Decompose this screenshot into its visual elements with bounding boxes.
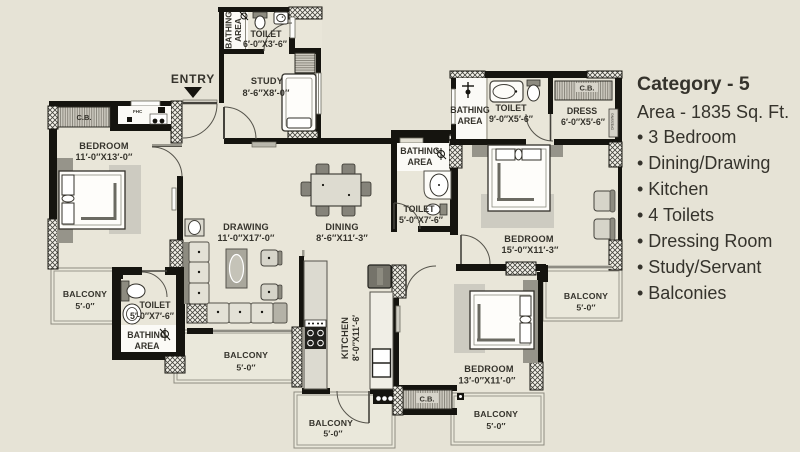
svg-text:AREA: AREA xyxy=(233,18,243,42)
svg-text:13′-0″X11′-0″: 13′-0″X11′-0″ xyxy=(459,376,516,386)
svg-text:C.B.: C.B. xyxy=(580,84,595,93)
svg-text:BATHING: BATHING xyxy=(400,146,440,156)
svg-text:BALCONY: BALCONY xyxy=(63,289,107,299)
svg-text:BALCONY: BALCONY xyxy=(309,418,353,428)
svg-text:8′-6″X11′-3″: 8′-6″X11′-3″ xyxy=(316,233,368,243)
svg-text:• Dining/Drawing: • Dining/Drawing xyxy=(637,153,770,173)
svg-text:5′-0″X7′-6″: 5′-0″X7′-6″ xyxy=(130,311,175,321)
svg-text:8′-6″X8′-0″: 8′-6″X8′-0″ xyxy=(243,88,290,98)
svg-text:C.B.: C.B. xyxy=(77,113,92,122)
svg-text:5′-0″: 5′-0″ xyxy=(323,429,342,439)
svg-text:BEDROOM: BEDROOM xyxy=(504,234,554,244)
svg-text:TOILET: TOILET xyxy=(250,29,282,39)
svg-text:BALCONY: BALCONY xyxy=(474,409,518,419)
svg-text:• Study/Servant: • Study/Servant xyxy=(637,257,761,277)
svg-text:BEDROOM: BEDROOM xyxy=(464,364,514,374)
svg-text:BALCONY: BALCONY xyxy=(564,291,608,301)
svg-text:DRESS: DRESS xyxy=(567,106,597,116)
svg-text:5′-0″: 5′-0″ xyxy=(236,363,255,373)
svg-text:STUDY: STUDY xyxy=(251,76,283,86)
svg-text:8′-0″X11′-6′: 8′-0″X11′-6′ xyxy=(351,315,361,361)
svg-text:• 3 Bedroom: • 3 Bedroom xyxy=(637,127,736,147)
svg-text:• Balconies: • Balconies xyxy=(637,283,726,303)
svg-text:DINING: DINING xyxy=(325,222,358,232)
svg-text:AREA: AREA xyxy=(408,157,434,167)
svg-text:BATHING: BATHING xyxy=(450,105,490,115)
svg-text:6′-0″X5′-6″: 6′-0″X5′-6″ xyxy=(561,117,606,127)
svg-text:TOILET: TOILET xyxy=(403,204,435,214)
svg-text:5′-0″X7′-6″: 5′-0″X7′-6″ xyxy=(399,215,444,225)
svg-text:FHC: FHC xyxy=(133,109,143,114)
svg-text:6′-0″X3′-6″: 6′-0″X3′-6″ xyxy=(243,39,288,49)
svg-text:AREA: AREA xyxy=(458,116,484,126)
svg-text:ENTRY: ENTRY xyxy=(171,72,215,86)
svg-text:DRESSING: DRESSING xyxy=(611,113,615,130)
svg-text:5′-0″: 5′-0″ xyxy=(486,421,505,431)
svg-text:KITCHEN: KITCHEN xyxy=(340,317,350,359)
svg-text:DRAWING: DRAWING xyxy=(223,222,269,232)
svg-text:• 4 Toilets: • 4 Toilets xyxy=(637,205,714,225)
svg-text:5′-0″: 5′-0″ xyxy=(576,303,595,313)
svg-text:Category - 5: Category - 5 xyxy=(637,73,750,95)
svg-text:BEDROOM: BEDROOM xyxy=(79,141,129,151)
svg-text:• Kitchen: • Kitchen xyxy=(637,179,708,199)
svg-text:AREA: AREA xyxy=(135,341,161,351)
svg-text:BALCONY: BALCONY xyxy=(224,350,268,360)
svg-text:11′-0″X17′-0″: 11′-0″X17′-0″ xyxy=(218,233,275,243)
svg-text:TOILET: TOILET xyxy=(495,103,527,113)
svg-text:Area - 1835 Sq. Ft.: Area - 1835 Sq. Ft. xyxy=(637,102,789,122)
svg-text:• Dressing Room: • Dressing Room xyxy=(637,231,772,251)
svg-text:5′-0″: 5′-0″ xyxy=(75,301,94,311)
svg-text:BATHING: BATHING xyxy=(224,11,234,49)
svg-text:BATHING: BATHING xyxy=(127,330,167,340)
svg-text:TOILET: TOILET xyxy=(139,300,171,310)
svg-text:9′-0″X5′-6″: 9′-0″X5′-6″ xyxy=(489,114,534,124)
svg-text:C.B.: C.B. xyxy=(420,395,435,404)
svg-text:11′-0″X13′-0″: 11′-0″X13′-0″ xyxy=(76,152,133,162)
svg-text:15′-0″X11′-3″: 15′-0″X11′-3″ xyxy=(502,245,559,255)
